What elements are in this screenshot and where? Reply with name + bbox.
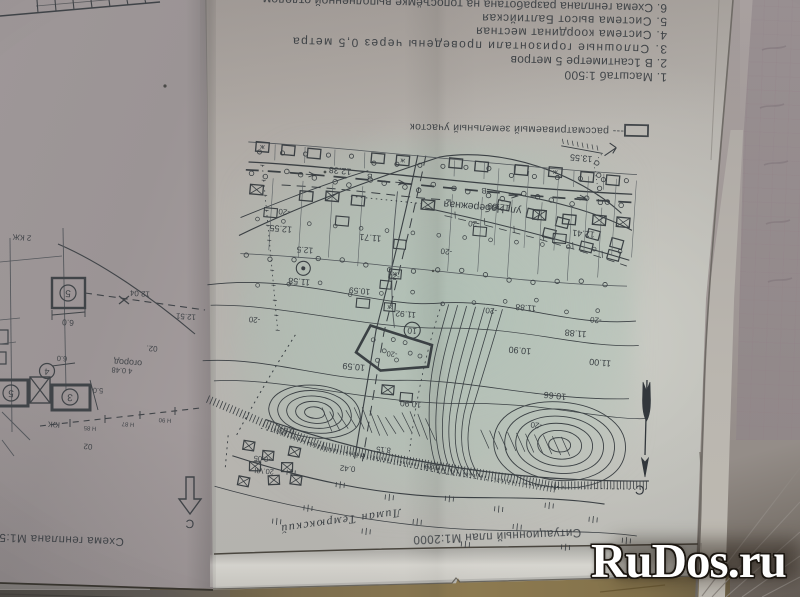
svg-text:-0.05: -0.05 — [253, 454, 271, 464]
svg-text:20.VII: 20.VII — [254, 466, 274, 477]
svg-text:0.63: 0.63 — [278, 426, 295, 436]
svg-text:11.88: 11.88 — [564, 327, 587, 339]
svg-text:12.38: 12.38 — [328, 165, 351, 177]
svg-text:0.42: 0.42 — [339, 463, 356, 473]
svg-text:6.0: 6.0 — [61, 317, 74, 328]
svg-text:Схема генплана М1:50: Схема генплана М1:50 — [0, 531, 124, 548]
svg-text:С: С — [634, 482, 645, 498]
svg-text:-20: -20 — [485, 306, 498, 316]
svg-text:11.71: 11.71 — [359, 232, 382, 244]
svg-text:02.: 02. — [146, 344, 158, 354]
svg-text:Ситуационный план М1:2000: Ситуационный план М1:2000 — [413, 526, 582, 545]
svg-text:5: 5 — [7, 387, 14, 398]
svg-text:13.55: 13.55 — [570, 152, 593, 164]
svg-text:5.29: 5.29 — [424, 462, 439, 472]
svg-text:12.51: 12.51 — [175, 311, 196, 321]
svg-text:ж: ж — [400, 156, 406, 163]
svg-text:12.41: 12.41 — [572, 228, 595, 240]
svg-text:10.59: 10.59 — [348, 285, 370, 297]
svg-text:6. Схема генплана разработан: 6. Схема генплана разработана на топосъё… — [263, 0, 668, 15]
svg-text:-20: -20 — [278, 207, 291, 217]
svg-text:10: 10 — [407, 326, 418, 337]
svg-text:-20: -20 — [467, 219, 480, 229]
svg-text:5.0: 5.0 — [92, 386, 103, 396]
svg-text:10.90: 10.90 — [399, 398, 421, 410]
svg-text:8.15: 8.15 — [376, 445, 391, 455]
svg-text:В: В — [481, 186, 487, 195]
svg-text:ж: ж — [260, 143, 266, 150]
svg-text:11.92: 11.92 — [395, 308, 417, 320]
svg-text:11.58: 11.58 — [288, 276, 311, 288]
svg-text:-20: -20 — [248, 315, 261, 325]
svg-text:10.66: 10.66 — [543, 390, 566, 402]
svg-text:5: 5 — [64, 287, 71, 298]
svg-text:6.0: 6.0 — [56, 354, 67, 364]
svg-text:11.00: 11.00 — [589, 357, 612, 369]
svg-text:Лиман Темрюкский: Лиман Темрюкский — [279, 506, 403, 537]
svg-text:ж: ж — [552, 168, 558, 175]
svg-text:12.5: 12.5 — [296, 244, 314, 255]
svg-text:02: 02 — [83, 442, 93, 452]
svg-text:Н 85: Н 85 — [83, 424, 97, 431]
svg-text:Н 87: Н 87 — [121, 420, 135, 427]
svg-text:В: В — [367, 172, 373, 181]
svg-text:12.04: 12.04 — [129, 288, 150, 298]
svg-text:10.90: 10.90 — [508, 345, 531, 357]
svg-text:-20: -20 — [387, 272, 400, 282]
svg-text:11.88: 11.88 — [515, 302, 537, 314]
svg-text:2 КЖ: 2 КЖ — [12, 232, 32, 242]
svg-text:С: С — [185, 517, 195, 532]
svg-text:-20: -20 — [440, 246, 453, 256]
svg-text:12.55: 12.55 — [269, 223, 292, 235]
svg-text:Н 90: Н 90 — [158, 416, 172, 423]
svg-text:-20: -20 — [589, 315, 602, 325]
svg-text:10.59: 10.59 — [342, 361, 365, 373]
svg-text:--- рассматриваемый земельный: --- рассматриваемый земельный участок — [410, 121, 625, 137]
svg-text:ж: ж — [387, 303, 393, 310]
svg-text:огород: огород — [113, 357, 143, 369]
svg-text:-20: -20 — [386, 349, 398, 359]
svg-text:-20: -20 — [530, 420, 543, 430]
svg-text:4: 4 — [44, 366, 50, 376]
svg-text:3: 3 — [66, 391, 73, 402]
